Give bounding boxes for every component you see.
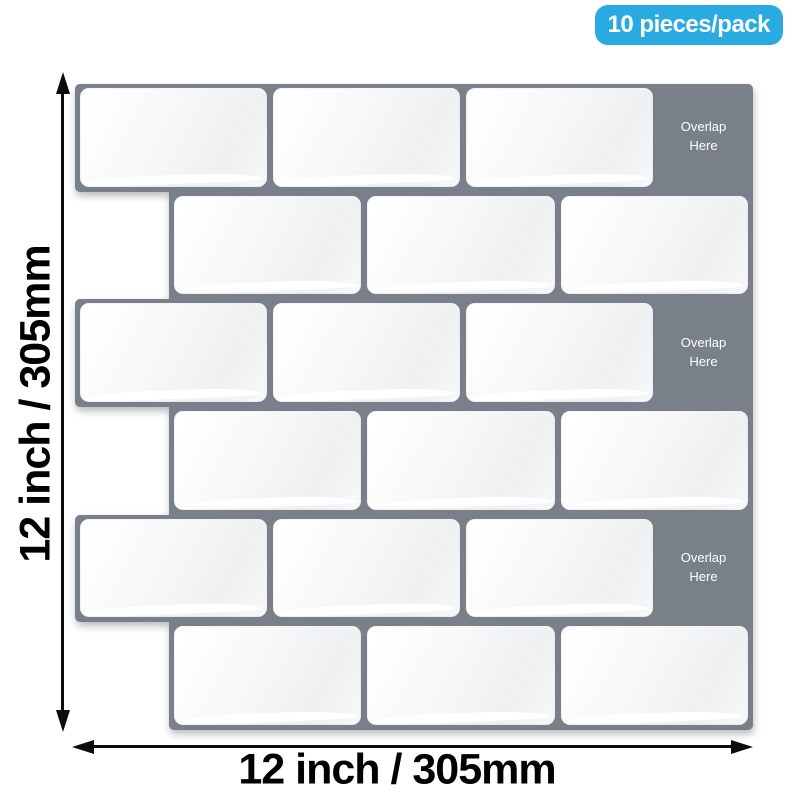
tile — [273, 88, 460, 187]
tile — [561, 411, 748, 510]
tile-row: Overlap Here — [75, 84, 753, 192]
arrowhead-left-icon — [72, 740, 94, 754]
tile — [273, 303, 460, 402]
overlap-zone: Overlap Here — [659, 88, 748, 187]
tile — [80, 519, 267, 618]
vertical-dimension-label: 12 inch / 305mm — [12, 245, 61, 562]
product-diagram: 10 pieces/pack Overlap HereOverlap HereO… — [0, 0, 800, 800]
arrowhead-right-icon — [731, 740, 753, 754]
tile — [174, 196, 361, 295]
tile — [174, 626, 361, 725]
tile-sheet: Overlap HereOverlap HereOverlap Here — [0, 0, 800, 800]
tile — [367, 626, 554, 725]
tile — [466, 303, 653, 402]
tile-row: Overlap Here — [75, 299, 753, 407]
tile — [273, 519, 460, 618]
tile-row — [169, 192, 753, 300]
tile-row: Overlap Here — [75, 515, 753, 623]
tile — [561, 626, 748, 725]
overlap-zone: Overlap Here — [659, 303, 748, 402]
tile — [174, 411, 361, 510]
overlap-label: Overlap Here — [673, 334, 735, 372]
tile-row — [169, 407, 753, 515]
tile — [367, 196, 554, 295]
tile — [80, 88, 267, 187]
overlap-zone: Overlap Here — [659, 519, 748, 618]
arrowhead-down-icon — [56, 710, 70, 732]
overlap-label: Overlap Here — [673, 549, 735, 587]
overlap-label: Overlap Here — [673, 118, 735, 156]
horizontal-dimension-label: 12 inch / 305mm — [238, 746, 555, 795]
tile — [561, 196, 748, 295]
vertical-dimension-arrow-line — [61, 86, 64, 716]
tile — [80, 303, 267, 402]
tile — [466, 519, 653, 618]
tile-row — [169, 622, 753, 730]
tile — [466, 88, 653, 187]
tile — [367, 411, 554, 510]
arrowhead-up-icon — [56, 72, 70, 94]
